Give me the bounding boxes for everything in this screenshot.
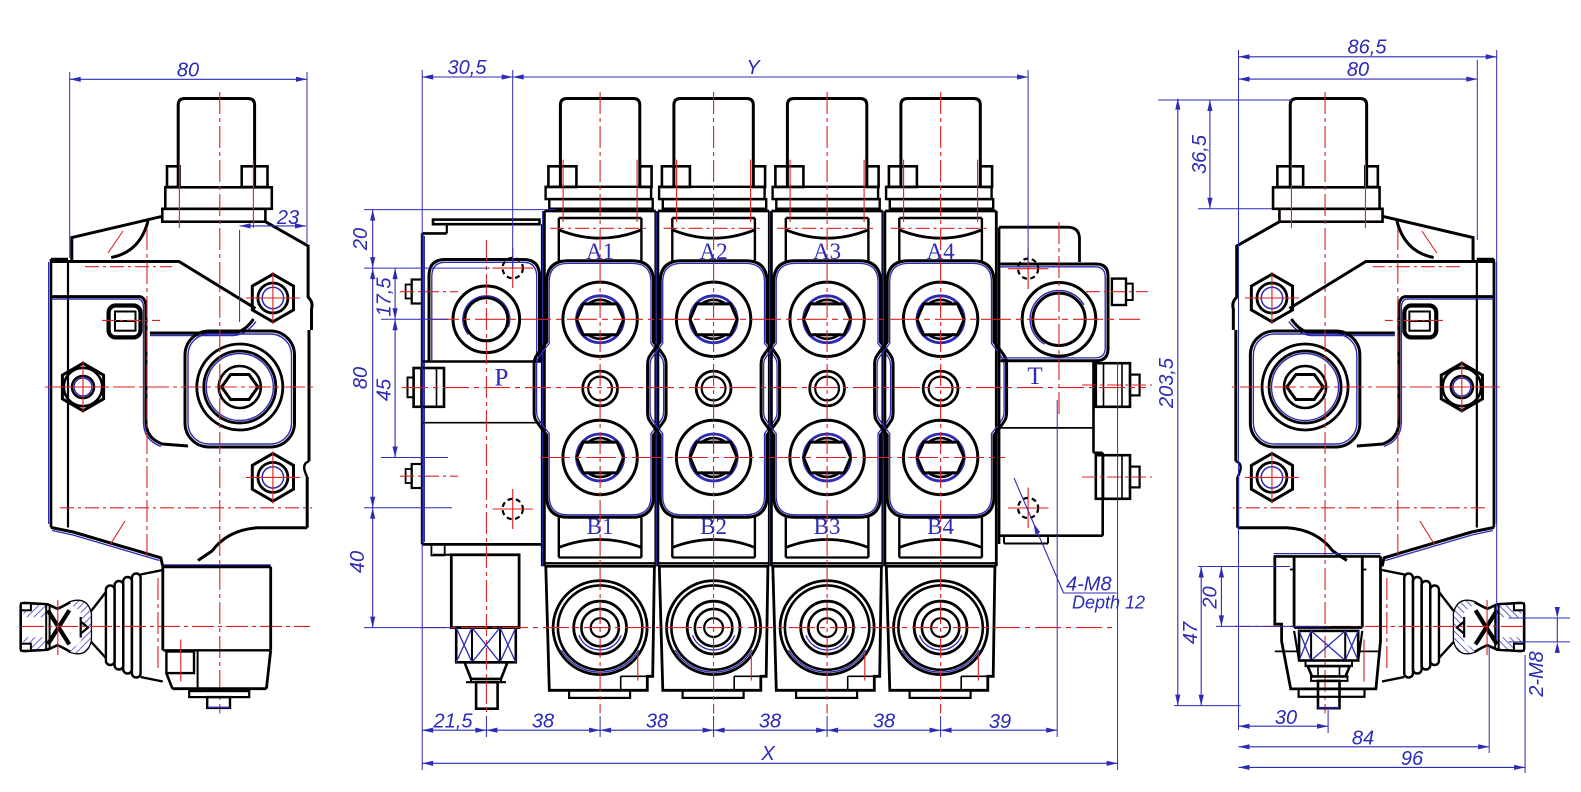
svg-text:Y: Y	[746, 57, 761, 79]
svg-text:45: 45	[374, 378, 396, 401]
svg-text:23: 23	[276, 207, 299, 229]
svg-text:T: T	[1027, 363, 1042, 390]
svg-text:36,5: 36,5	[1189, 134, 1211, 174]
svg-text:80: 80	[1347, 59, 1369, 81]
svg-text:30: 30	[1275, 707, 1297, 729]
svg-text:86,5: 86,5	[1348, 37, 1388, 59]
svg-text:47: 47	[1180, 621, 1202, 644]
svg-text:17,5: 17,5	[374, 277, 396, 317]
svg-text:Depth 12: Depth 12	[1072, 593, 1145, 613]
svg-text:80: 80	[177, 60, 199, 82]
svg-text:96: 96	[1401, 748, 1424, 770]
svg-text:38: 38	[532, 711, 554, 733]
svg-text:21,5: 21,5	[433, 711, 474, 733]
svg-text:20: 20	[1200, 586, 1222, 609]
svg-text:39: 39	[989, 711, 1011, 733]
svg-text:203,5: 203,5	[1156, 357, 1178, 409]
svg-text:20: 20	[350, 228, 372, 251]
svg-text:2-M8: 2-M8	[1526, 651, 1548, 698]
svg-text:38: 38	[646, 711, 668, 733]
svg-text:84: 84	[1352, 728, 1374, 750]
svg-text:38: 38	[873, 711, 895, 733]
svg-text:X: X	[760, 743, 775, 765]
svg-text:38: 38	[759, 711, 781, 733]
svg-text:30,5: 30,5	[448, 57, 488, 79]
svg-text:80: 80	[350, 367, 372, 389]
svg-text:40: 40	[347, 551, 369, 573]
